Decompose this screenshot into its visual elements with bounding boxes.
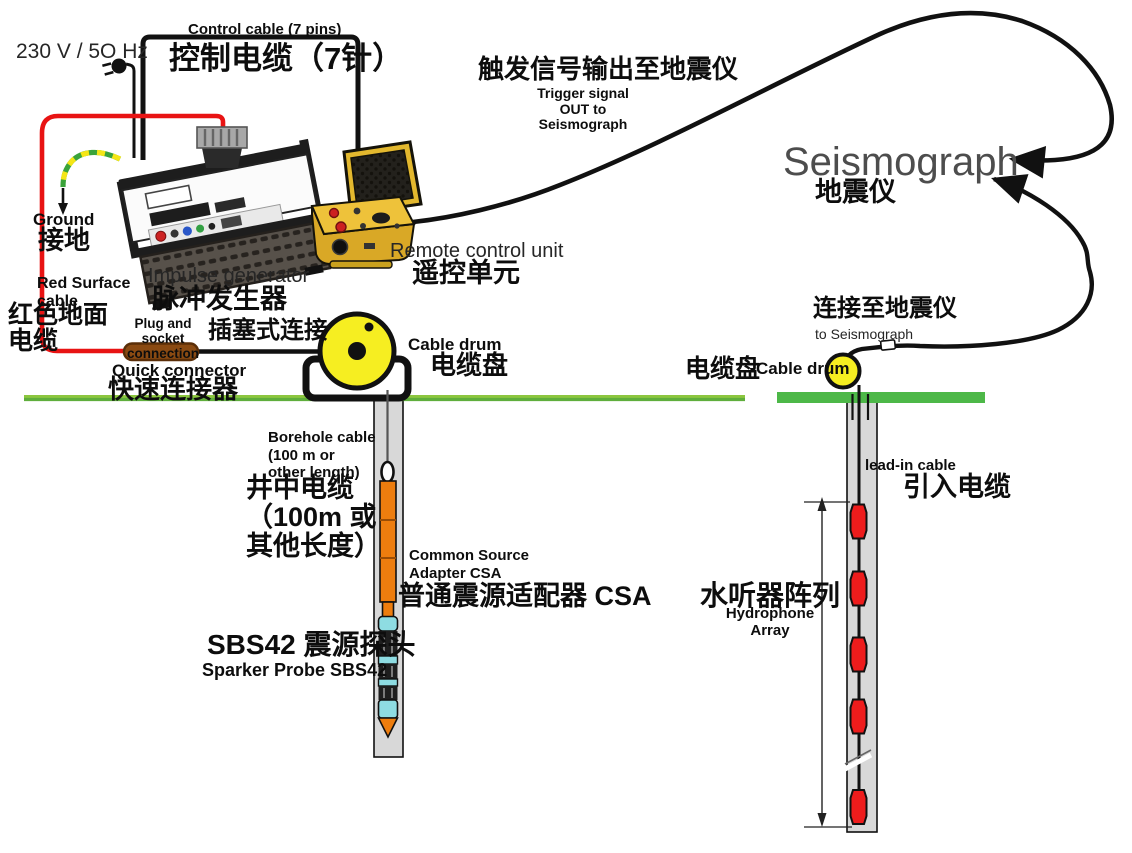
control-cable-label-zh: 控制电缆（7针） — [169, 41, 403, 76]
ground-cable — [58, 152, 120, 215]
trigger-signal-label-zh: 触发信号输出至地震仪 — [478, 55, 738, 85]
red-surface-cable-label-zh: 红色地面 电缆 — [8, 302, 108, 355]
power-spec-label: 230 V / 5O Hz — [16, 40, 148, 64]
diagram-canvas: 230 V / 5O Hz Control cable (7 pins) 控制电… — [0, 0, 1132, 853]
csa-label-en: Common Source Adapter CSA — [409, 547, 529, 582]
ground-label-zh: 接地 — [38, 226, 90, 256]
plug-socket-label-zh: 插塞式连接 — [208, 317, 328, 344]
seismograph-label-zh: 地震仪 — [815, 177, 896, 208]
quick-connector-label-zh: 快速连接器 — [108, 375, 238, 405]
cable-drum-left-label-zh: 电缆盘 — [430, 351, 508, 381]
impulse-generator-label-zh: 脉冲发生器 — [152, 284, 287, 315]
connect-seismograph-label-zh: 连接至地震仪 — [813, 295, 957, 322]
dimension-line — [804, 497, 852, 827]
leadin-cable-label-zh: 引入电缆 — [903, 472, 1011, 503]
power-cord — [126, 64, 134, 158]
plug-socket-label-en: Plug and socket connection — [120, 317, 206, 362]
csa-label-zh: 普通震源适配器 CSA — [398, 581, 652, 612]
sbs42-label-en: Sparker Probe SBS42 — [202, 660, 387, 681]
trigger-signal-label-en: Trigger signal OUT to Seismograph — [498, 86, 668, 133]
borehole-cable-label-zh: 井中电缆 （100m 或 其他长度） — [246, 474, 381, 561]
connect-seismograph-label-en: to Seismograph — [815, 327, 913, 343]
cable-drum-right-label-zh: 电缆盘 — [685, 355, 760, 384]
cable-drum-right-label-en: Cable drum — [756, 359, 850, 378]
hydrophone-array-label-en: Hydrophone Array — [715, 606, 825, 639]
rcu-label-zh: 遥控单元 — [412, 258, 520, 289]
control-cable-label-en: Control cable (7 pins) — [188, 21, 341, 38]
ground-surface-bar-right — [777, 392, 985, 403]
sbs42-label-zh: SBS42 震源探头 — [207, 629, 416, 661]
